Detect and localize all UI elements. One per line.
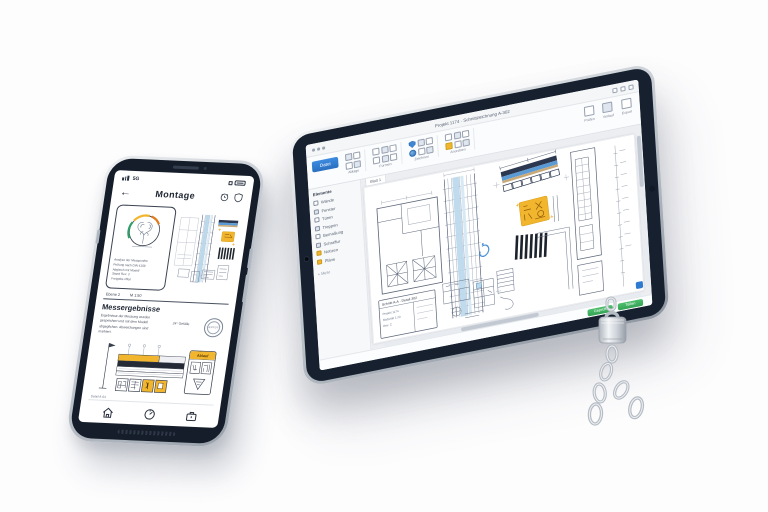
file-button[interactable]: Datei	[312, 157, 339, 173]
ribbon-group-label: Zeichnen	[414, 155, 429, 162]
results-paragraph: Ergebnisse der Messung wurden gespeicher…	[98, 313, 171, 338]
phone-tab-bar	[85, 399, 214, 427]
protect-icon[interactable]	[408, 140, 415, 148]
meta-right: M 1:50	[130, 293, 142, 298]
lock-body	[599, 317, 626, 343]
ribbon-group-label: Export	[622, 109, 632, 115]
approval-stamp: GEPRÜFT	[203, 318, 225, 338]
door-icon	[314, 217, 319, 223]
scene: 5G ← Montage	[0, 0, 768, 512]
polygon-tool-icon[interactable]	[373, 156, 380, 164]
rotate-icon[interactable]	[462, 130, 469, 138]
group-icon[interactable]	[453, 131, 460, 139]
window-icon	[314, 209, 319, 215]
format-icon[interactable]	[354, 160, 361, 168]
results-row: Ergebnisse der Messung wurden gespeicher…	[98, 313, 227, 340]
snap-icon[interactable]	[462, 138, 469, 146]
layers-icon[interactable]	[418, 147, 425, 155]
ribbon-group-clipboard: Ablage	[341, 149, 367, 175]
status-left: 5G	[122, 175, 140, 182]
pen-tool-icon[interactable]	[417, 139, 424, 147]
ribbon-icons[interactable]	[444, 130, 471, 150]
tablet-home-button[interactable]	[649, 185, 655, 192]
rect-tool-icon[interactable]	[372, 148, 379, 156]
phone-camera	[204, 167, 207, 170]
battery-icon	[234, 180, 246, 185]
ribbon-icons[interactable]	[407, 137, 434, 157]
carrier-label: 5G	[132, 175, 140, 181]
report-line: Freigabe offen	[111, 277, 161, 284]
gauge-icon[interactable]	[142, 407, 157, 421]
briefcase-icon[interactable]	[184, 409, 199, 423]
status-right	[228, 180, 246, 186]
hatch-icon	[316, 242, 321, 248]
layer-diagram: Ablauf	[89, 337, 223, 398]
signal-icon	[122, 176, 129, 181]
alarm-icon[interactable]	[219, 192, 230, 202]
paste-icon[interactable]	[345, 153, 352, 161]
ribbon-group-shapes: Formen	[368, 142, 403, 170]
window-controls[interactable]	[612, 84, 633, 93]
dimension-icon	[315, 234, 320, 240]
ribbon-group-label: Ablage	[348, 168, 359, 174]
meta-left: Ebene 2	[106, 292, 121, 297]
back-button[interactable]: ←	[119, 187, 132, 198]
ribbon-group-history: Verlauf	[599, 100, 617, 120]
connector-tool-icon[interactable]	[390, 152, 397, 160]
page-title: Montage	[134, 188, 216, 202]
order-icon[interactable]	[454, 140, 461, 148]
wifi-icon	[228, 181, 233, 185]
ribbon-group-review: Prüfen	[580, 103, 597, 122]
ribbon-group-label: Formen	[379, 162, 391, 168]
wall-icon	[313, 200, 318, 206]
phone-mute-switch	[95, 230, 100, 244]
padlock-charm	[583, 296, 679, 432]
highlight-icon[interactable]	[445, 141, 452, 149]
history-icon[interactable]	[602, 101, 613, 113]
ribbon-icons[interactable]	[371, 144, 398, 164]
side-note: 24° Gefälle	[172, 321, 189, 326]
ribbon-group-label: Prüfen	[584, 116, 595, 122]
home-icon[interactable]	[100, 405, 115, 419]
chain	[589, 346, 645, 424]
phone-frame: 5G ← Montage	[65, 155, 267, 448]
ribbon-group-arrange: Anordnen	[441, 128, 476, 156]
globe-icon[interactable]	[409, 149, 416, 157]
minimize-icon[interactable]	[612, 87, 617, 93]
process-card-header: Ablauf	[197, 354, 210, 359]
review-icon[interactable]	[584, 105, 595, 117]
ribbon-icons[interactable]	[344, 151, 362, 170]
phone-screen: 5G ← Montage	[78, 170, 255, 428]
comment-badge[interactable]	[636, 281, 643, 289]
phone-power-button	[247, 248, 253, 268]
brain-diagram	[115, 209, 173, 255]
ribbon-group-export: Export	[618, 96, 635, 115]
plan-folder-icon	[317, 259, 322, 265]
align-icon[interactable]	[445, 133, 452, 141]
clasp-ring	[607, 298, 615, 310]
grid-icon[interactable]	[426, 145, 433, 153]
phone-content: Analyse der Messpunkte Prüfung nach DIN …	[78, 202, 250, 428]
phone-device: 5G ← Montage	[65, 155, 267, 448]
quick-access-dots	[312, 146, 325, 151]
maximize-icon[interactable]	[620, 85, 625, 91]
shield-icon[interactable]	[233, 192, 244, 202]
close-icon[interactable]	[628, 84, 633, 90]
section-drawing	[168, 207, 242, 294]
tablet-camera	[304, 257, 308, 262]
ribbon-group-draw: Zeichnen	[404, 135, 439, 163]
note-folder-icon	[316, 250, 321, 256]
export-icon[interactable]	[621, 98, 632, 110]
phone-volume-button	[242, 274, 249, 302]
phone-speaker-grill	[117, 430, 175, 437]
phone-speaker	[173, 166, 199, 170]
process-card[interactable]: Ablauf	[184, 350, 216, 394]
cut-icon[interactable]	[353, 151, 360, 159]
phone-bezel: 5G ← Montage	[69, 158, 264, 444]
report-card[interactable]: Analyse der Messpunkte Prüfung nach DIN …	[105, 204, 177, 291]
copy-icon[interactable]	[345, 161, 352, 169]
line-tool-icon[interactable]	[389, 144, 396, 152]
sidebar-item-label: Pläne	[324, 256, 335, 263]
ribbon-group-label: Verlauf	[603, 113, 614, 119]
eraser-tool-icon[interactable]	[426, 137, 433, 145]
report-row: Analyse der Messpunkte Prüfung nach DIN …	[105, 204, 243, 293]
stairs-icon	[315, 225, 320, 231]
text-tool-icon[interactable]	[381, 154, 388, 162]
ellipse-tool-icon[interactable]	[381, 146, 388, 154]
